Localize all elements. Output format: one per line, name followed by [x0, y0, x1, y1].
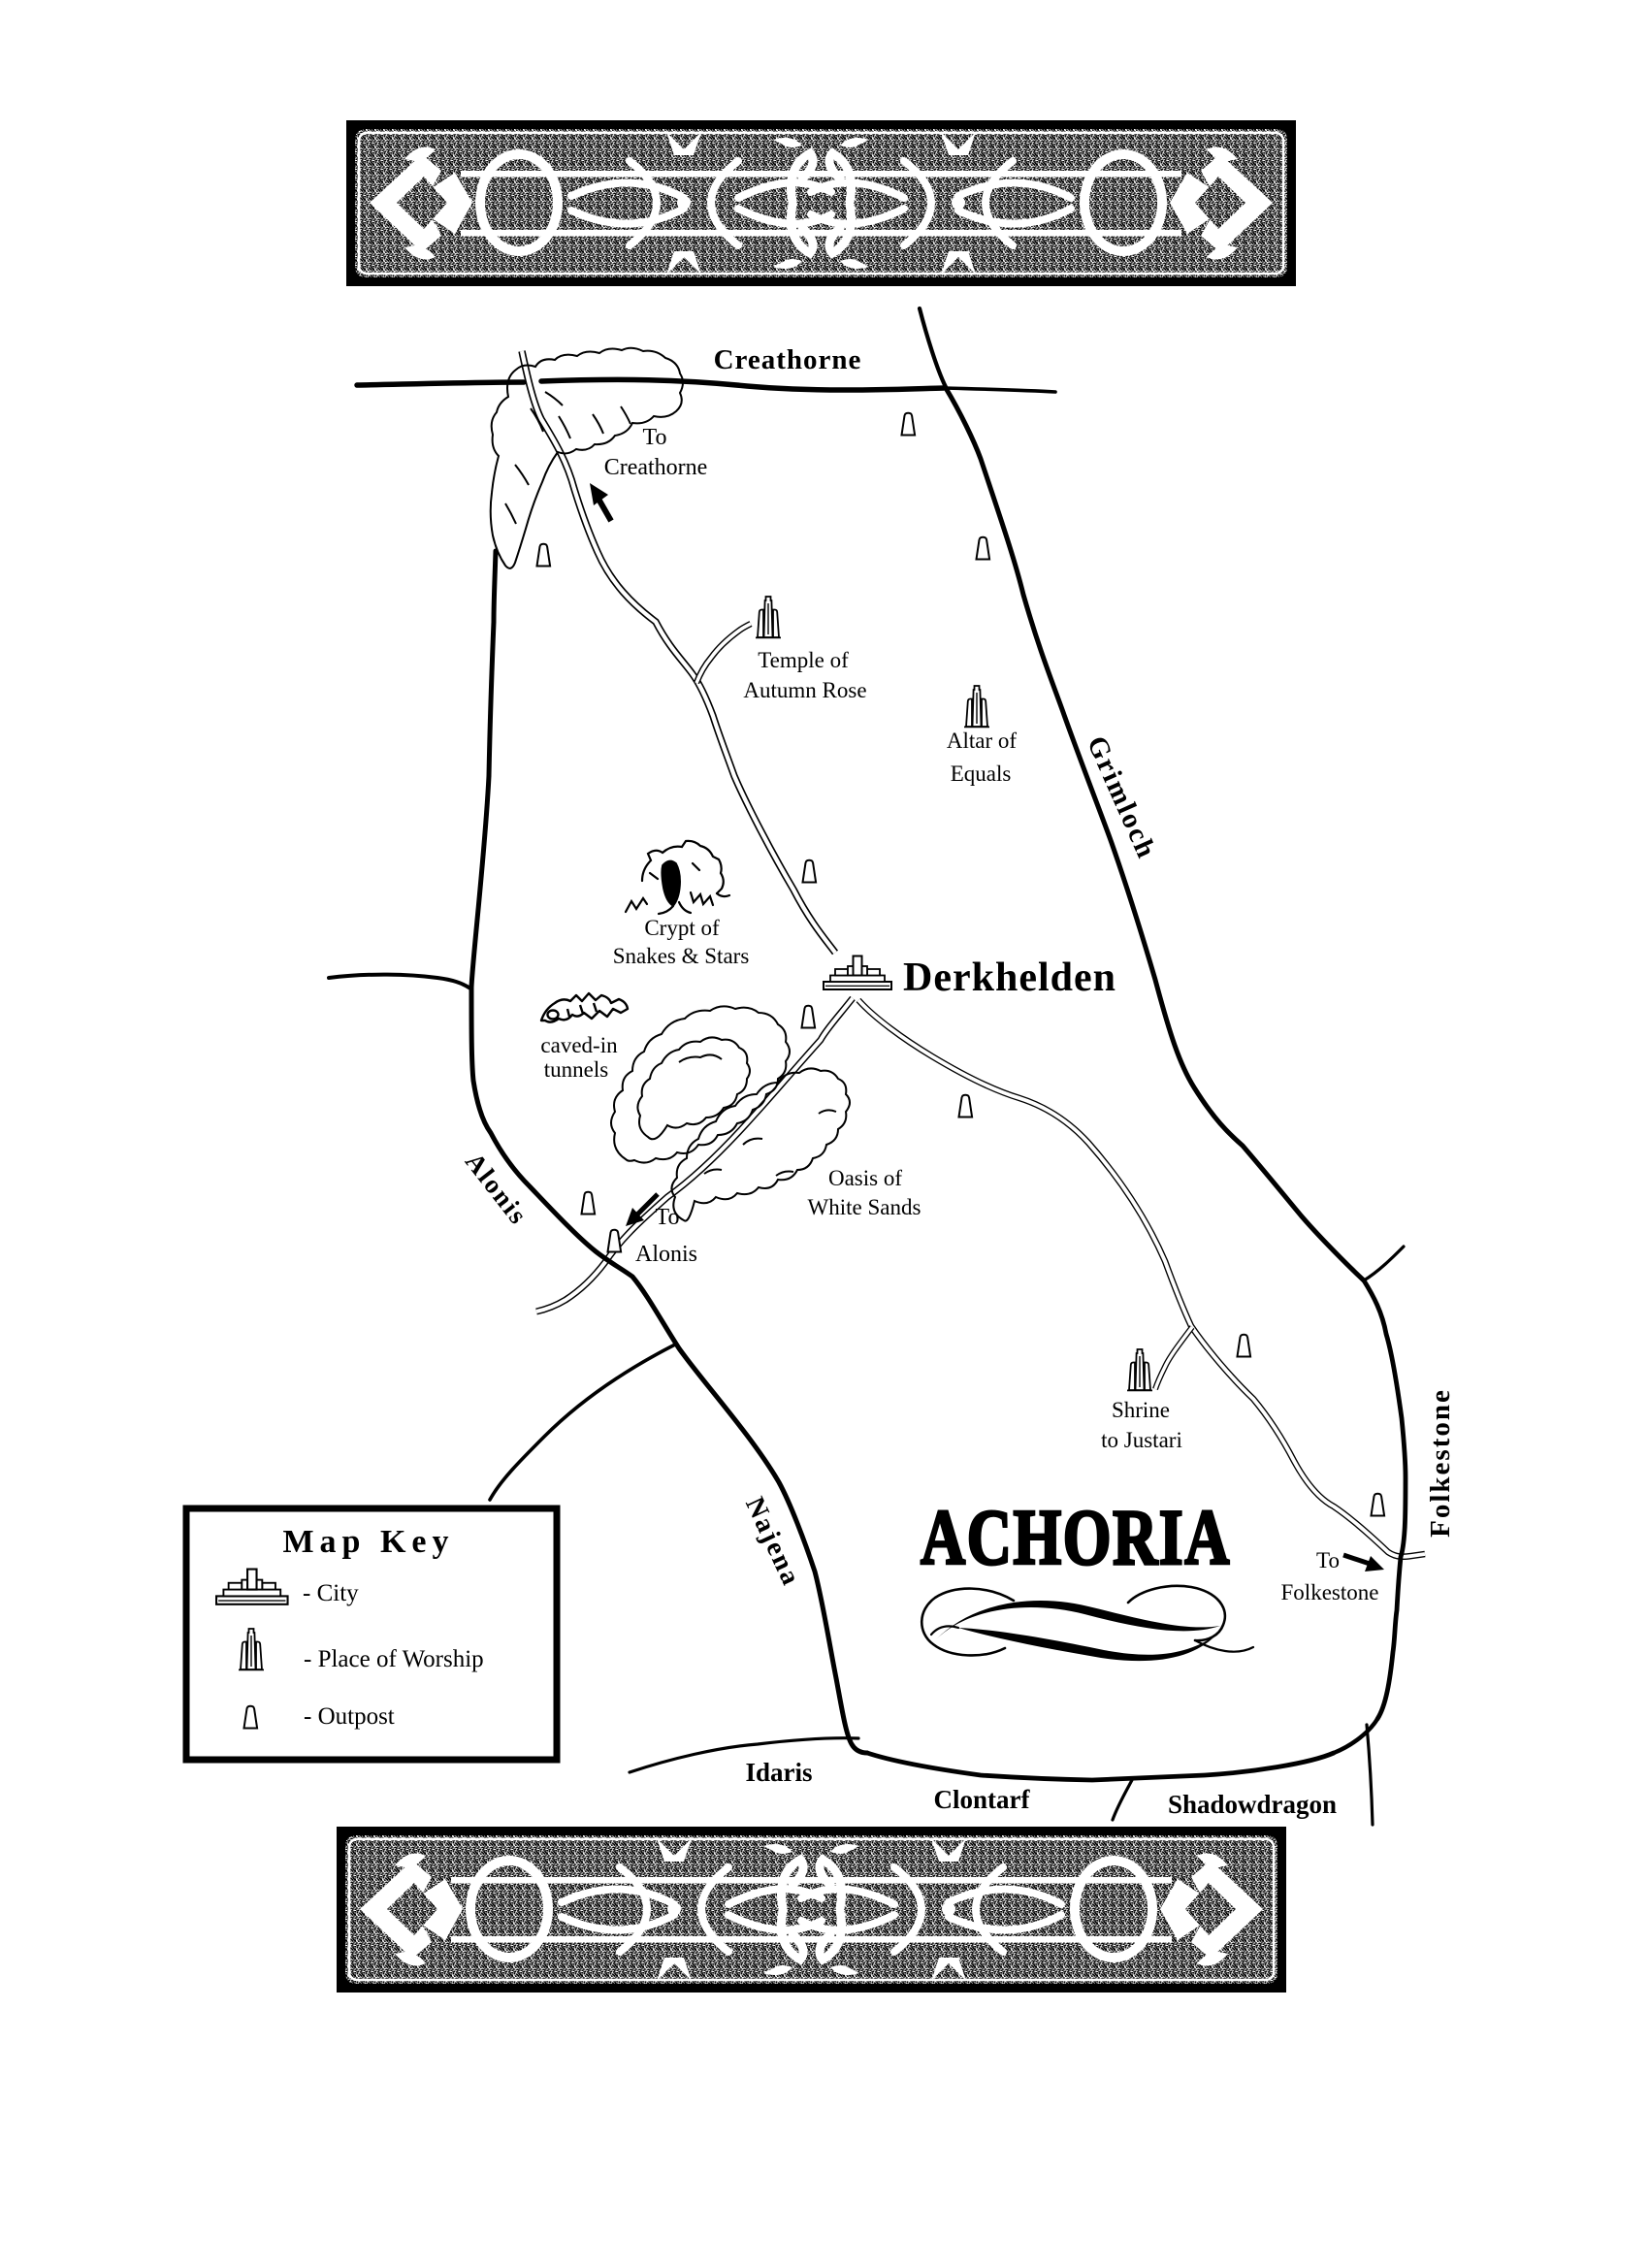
svg-text:Snakes & Stars: Snakes & Stars [613, 944, 750, 968]
svg-text:To: To [643, 425, 667, 450]
svg-text:- City: - City [303, 1580, 359, 1606]
svg-text:- Outpost: - Outpost [304, 1703, 395, 1730]
svg-text:Folkestone: Folkestone [1425, 1388, 1456, 1538]
svg-text:Temple of: Temple of [758, 648, 849, 672]
svg-text:Derkhelden: Derkhelden [903, 956, 1116, 1000]
svg-text:- Place of Worship: - Place of Worship [304, 1646, 484, 1672]
svg-text:to Justari: to Justari [1101, 1428, 1182, 1452]
svg-text:Idaris: Idaris [745, 1758, 812, 1787]
svg-text:Shadowdragon: Shadowdragon [1168, 1790, 1337, 1819]
svg-text:To: To [1316, 1548, 1340, 1572]
svg-text:Shrine: Shrine [1112, 1398, 1170, 1422]
svg-text:Equals: Equals [951, 761, 1012, 786]
svg-text:Autumn Rose: Autumn Rose [743, 678, 866, 702]
svg-text:Clontarf: Clontarf [934, 1785, 1031, 1814]
svg-text:Oasis of: Oasis of [828, 1166, 902, 1190]
svg-text:caved-in: caved-in [540, 1033, 618, 1057]
svg-text:ACHORIA: ACHORIA [921, 1493, 1231, 1581]
svg-text:Alonis: Alonis [635, 1242, 697, 1267]
svg-text:Altar of: Altar of [947, 729, 1018, 753]
svg-text:To: To [656, 1205, 680, 1230]
svg-text:Creathorne: Creathorne [714, 344, 862, 375]
svg-text:Creathorne: Creathorne [604, 455, 708, 480]
svg-text:Crypt of: Crypt of [644, 916, 720, 940]
svg-text:Folkestone: Folkestone [1281, 1580, 1379, 1604]
svg-text:tunnels: tunnels [544, 1057, 608, 1082]
svg-text:Map Key: Map Key [282, 1524, 454, 1560]
svg-text:White Sands: White Sands [808, 1195, 921, 1219]
